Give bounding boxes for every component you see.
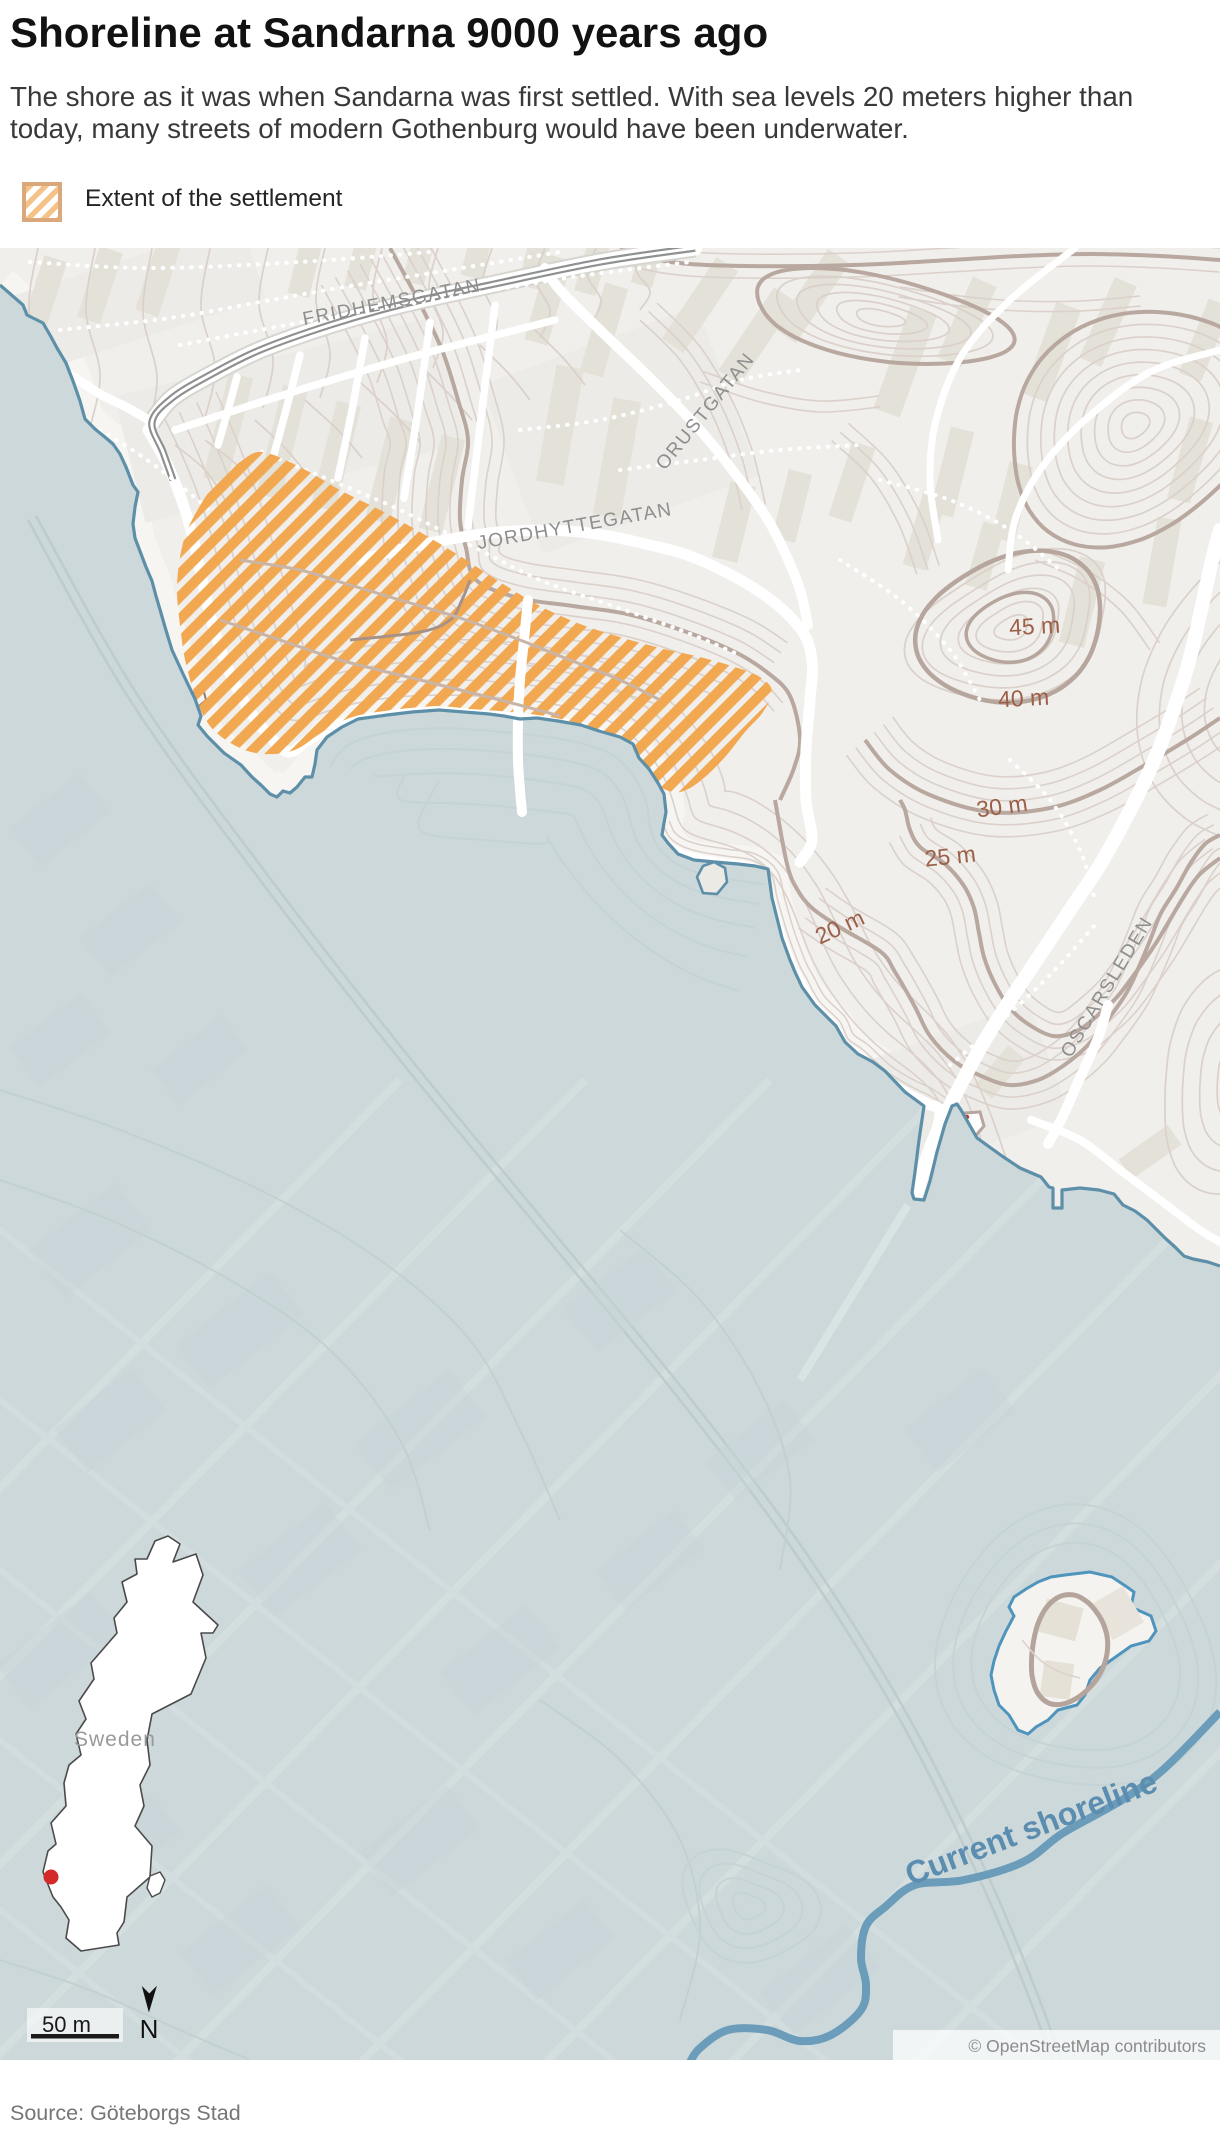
svg-text:40 m: 40 m	[997, 684, 1049, 713]
svg-text:© OpenStreetMap contributors: © OpenStreetMap contributors	[968, 2036, 1206, 2056]
svg-text:45 m: 45 m	[1008, 612, 1060, 641]
svg-text:Sweden: Sweden	[74, 1728, 156, 1751]
svg-text:N: N	[140, 2014, 159, 2044]
svg-text:25 m: 25 m	[923, 840, 977, 871]
svg-text:50 m: 50 m	[42, 2012, 91, 2037]
